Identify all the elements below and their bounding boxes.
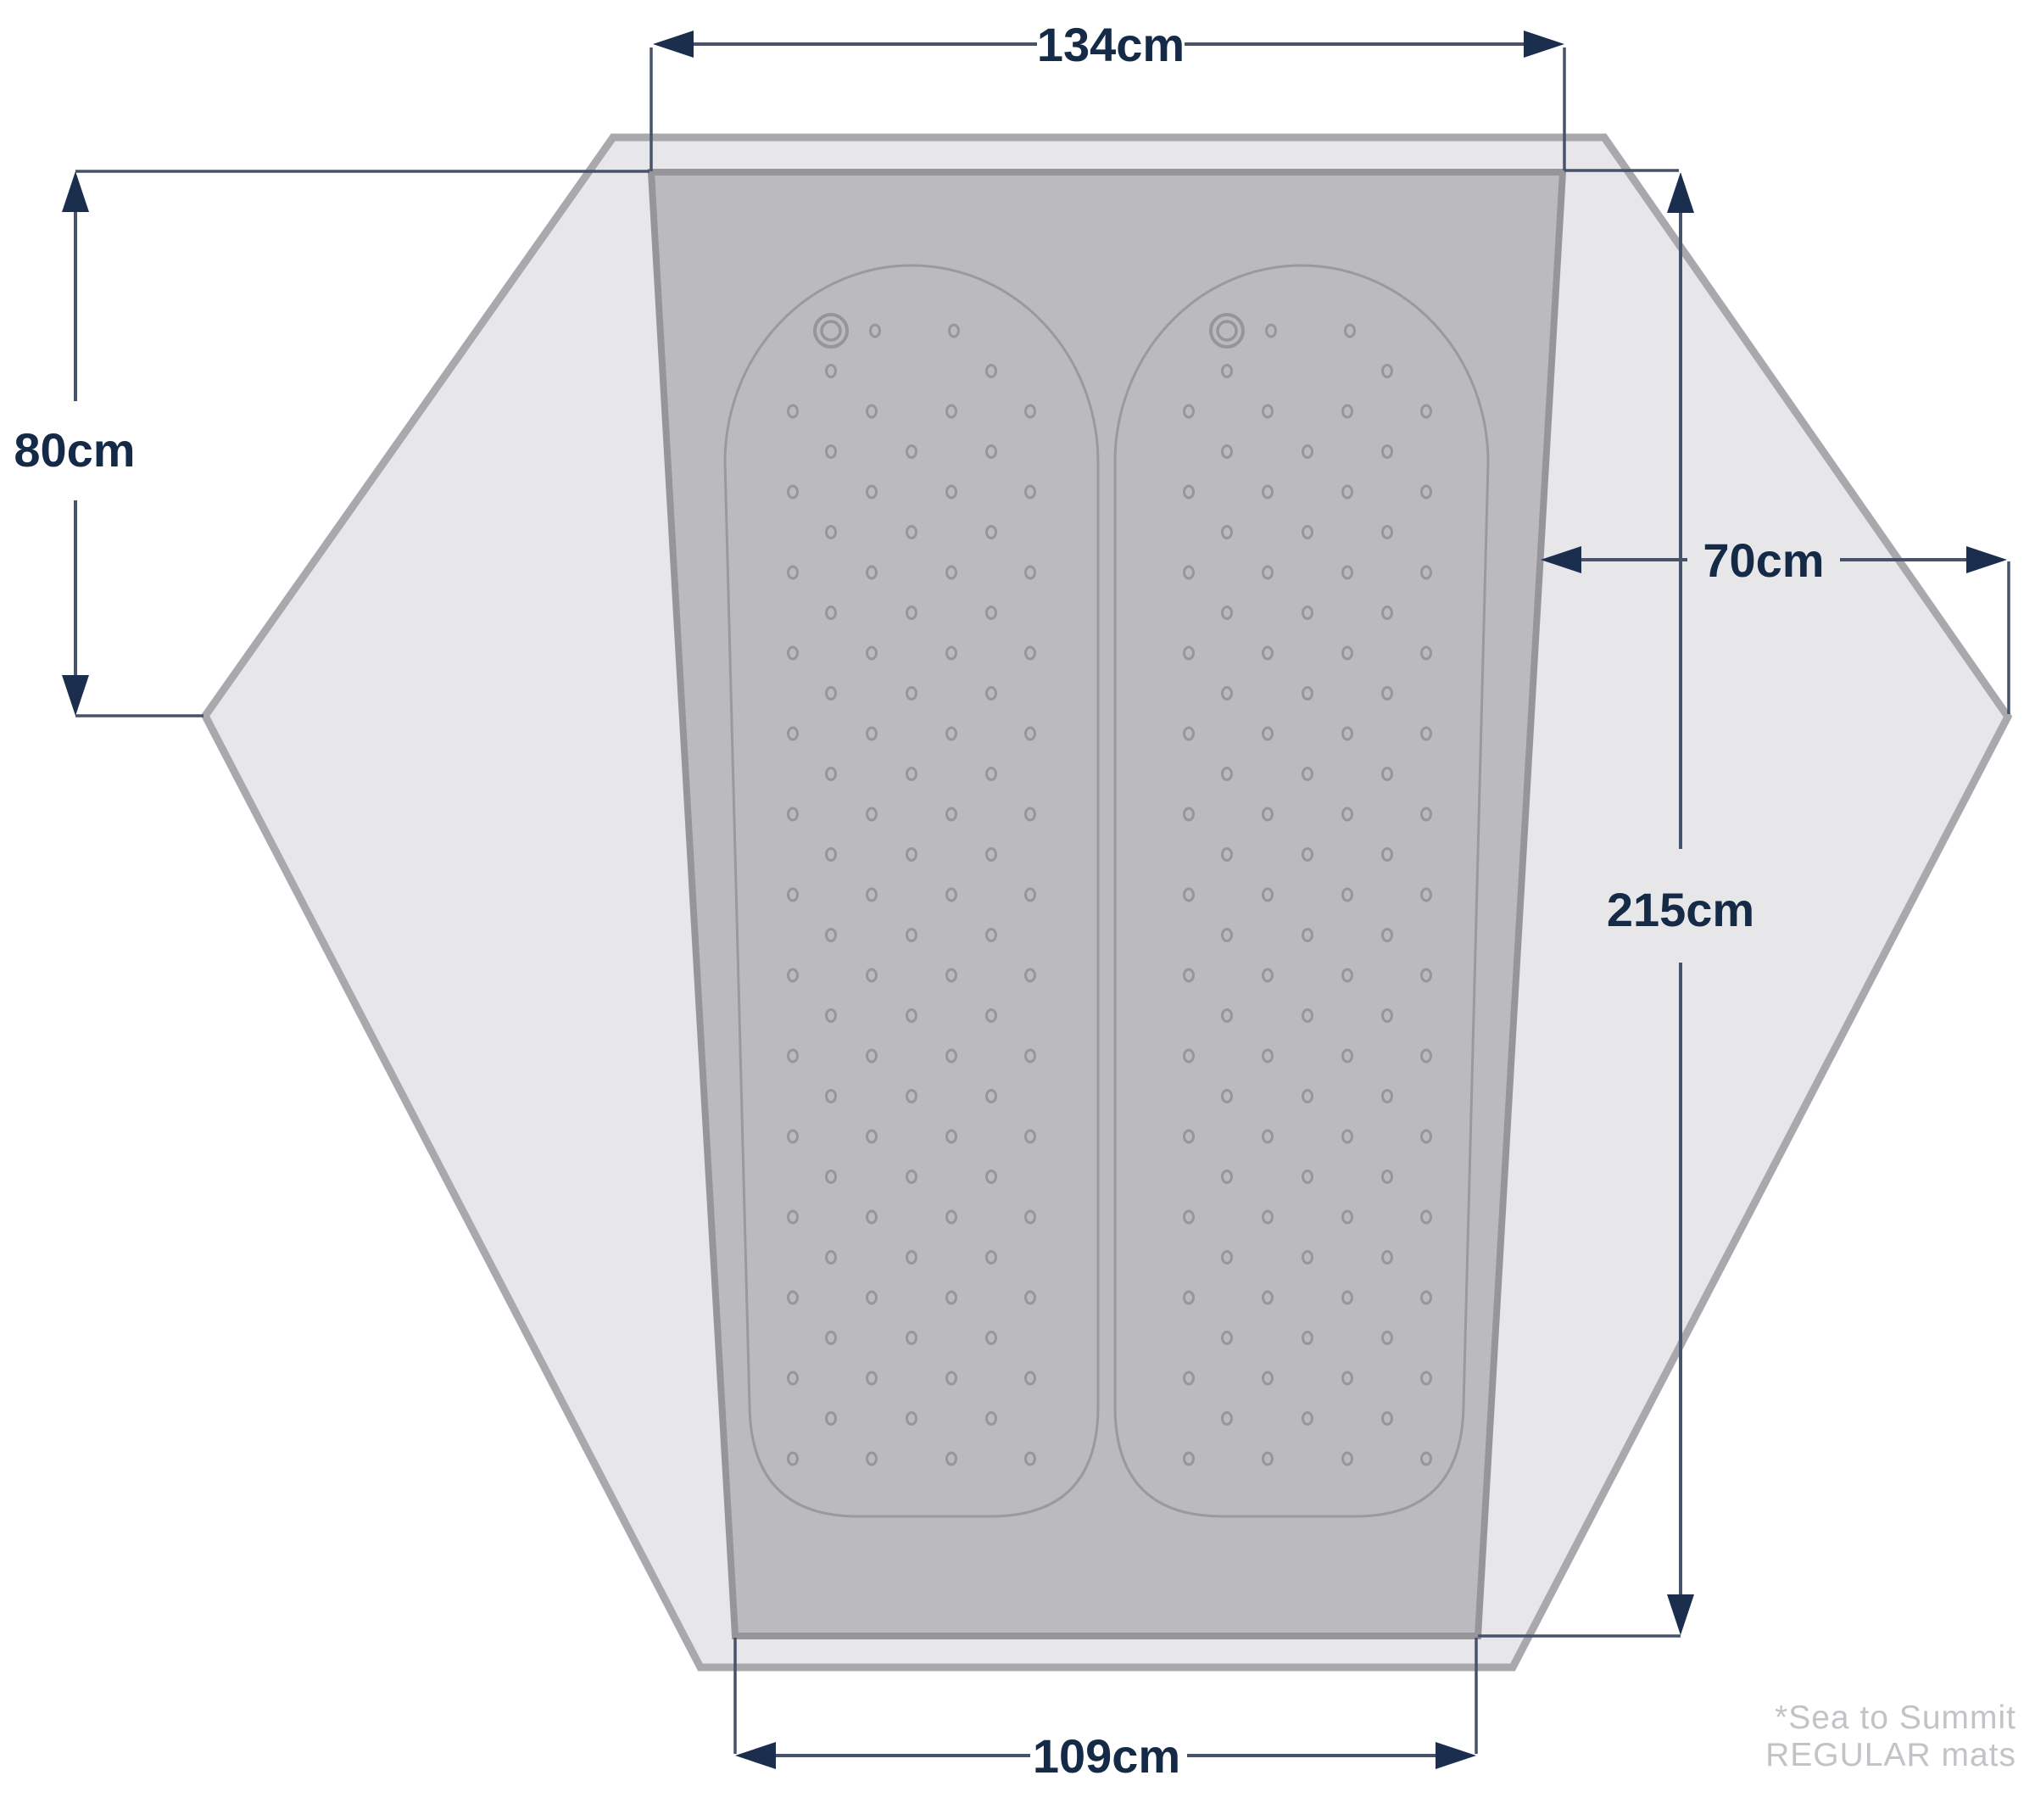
tent-floor bbox=[651, 172, 1563, 1636]
arrow-right-icon bbox=[1524, 31, 1564, 58]
arrow-left-icon bbox=[653, 31, 694, 58]
label-left-vestibule: 80cm bbox=[14, 423, 135, 477]
footnote-line2: REGULAR mats bbox=[1765, 1737, 2016, 1773]
footnote: *Sea to Summit REGULAR mats bbox=[1765, 1700, 2016, 1773]
arrow-up-icon bbox=[1667, 172, 1694, 213]
label-top-width: 134cm bbox=[1037, 18, 1185, 71]
label-floor-length: 215cm bbox=[1607, 883, 1754, 936]
tent-dimension-diagram: 134cm 80cm 70cm 215cm 109cm bbox=[0, 0, 2035, 1820]
label-right-vestibule: 70cm bbox=[1703, 533, 1824, 587]
arrow-up-icon bbox=[62, 171, 89, 212]
arrow-down-icon bbox=[62, 675, 89, 716]
arrow-right-icon bbox=[1966, 546, 2007, 573]
diagram-canvas: 134cm 80cm 70cm 215cm 109cm bbox=[0, 0, 2035, 1820]
arrow-left-icon bbox=[735, 1742, 776, 1769]
footnote-line1: *Sea to Summit bbox=[1775, 1700, 2016, 1736]
arrow-down-icon bbox=[1667, 1594, 1694, 1635]
arrow-right-icon bbox=[1436, 1742, 1476, 1769]
label-bottom-width: 109cm bbox=[1033, 1729, 1180, 1783]
